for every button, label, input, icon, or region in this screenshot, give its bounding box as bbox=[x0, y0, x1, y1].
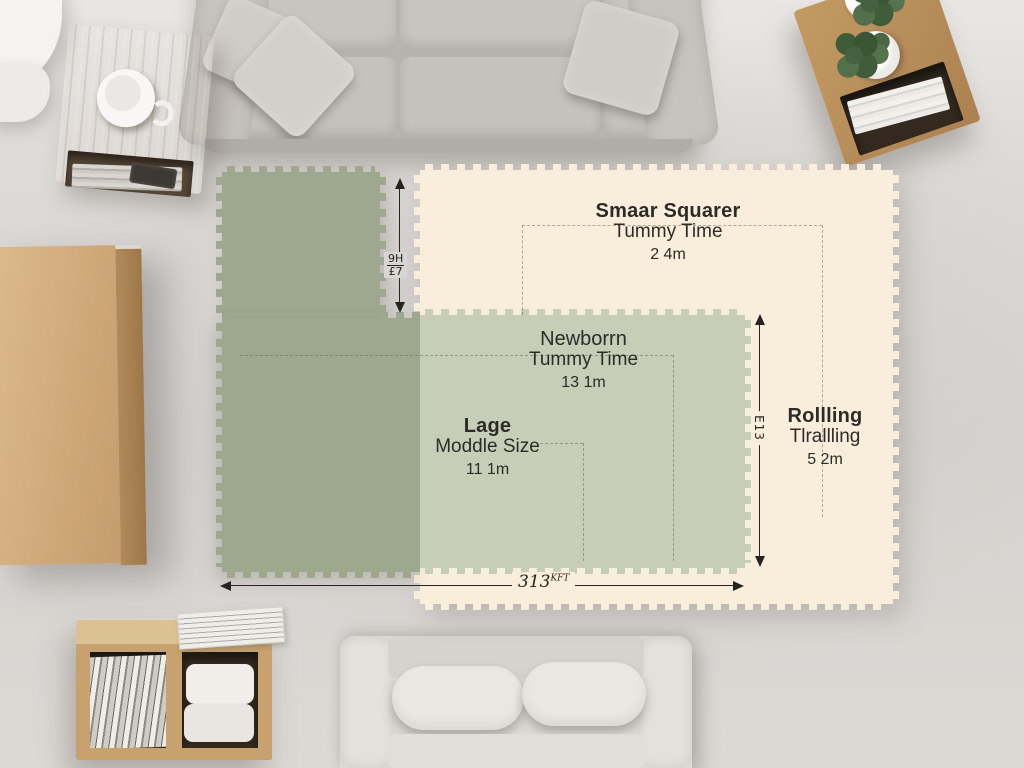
mug-handle bbox=[149, 99, 175, 127]
loveseat-armrest-left bbox=[340, 636, 394, 768]
label-small-square-mat: Smaar Squarer Tummy Time 2 4m bbox=[553, 200, 783, 263]
mat-subname: Tummy Time bbox=[553, 222, 783, 243]
cabinet-top bbox=[0, 245, 121, 565]
sofa-top bbox=[196, 0, 701, 153]
console-cabinet bbox=[0, 245, 147, 566]
loveseat-pillow bbox=[522, 662, 646, 726]
arrowhead-up-icon bbox=[755, 314, 765, 325]
shelf-compartment-right bbox=[182, 652, 258, 748]
guide-large-right bbox=[583, 443, 584, 561]
mat-size: 13 1m bbox=[496, 374, 671, 392]
sofa-back-cushion bbox=[400, 0, 600, 54]
puzzle-edge bbox=[380, 312, 420, 319]
armchair-cushion bbox=[0, 62, 50, 122]
side-table-left bbox=[55, 24, 214, 194]
shelf-compartment-left bbox=[90, 652, 166, 748]
dimension-label-gap: 9H £7 bbox=[384, 252, 407, 278]
loveseat-pillow bbox=[392, 666, 524, 730]
puzzle-edge bbox=[227, 166, 375, 173]
newspaper bbox=[177, 606, 285, 649]
loveseat-seat bbox=[388, 734, 646, 768]
dimension-label-height: E13 bbox=[751, 411, 767, 445]
puzzle-edge bbox=[425, 164, 888, 171]
puzzle-edge bbox=[425, 309, 740, 316]
puzzle-edge bbox=[379, 177, 386, 313]
arrowhead-left-icon bbox=[220, 581, 231, 591]
mat-name: Rollling bbox=[766, 405, 884, 427]
dimension-unit: KFT bbox=[550, 573, 569, 583]
guide-newborn-right bbox=[673, 355, 674, 561]
mat-name: Smaar Squarer bbox=[553, 200, 783, 222]
label-large-mat: Lage Moddle Size 11 1m bbox=[410, 415, 565, 478]
mat-size: 11 1m bbox=[410, 461, 565, 479]
puzzle-edge bbox=[425, 567, 740, 574]
arrowhead-down-icon bbox=[755, 556, 765, 567]
puzzle-edge bbox=[216, 323, 223, 567]
dimension-value: 9H bbox=[387, 253, 404, 266]
side-table-left-shelf bbox=[65, 150, 194, 197]
records-stack bbox=[90, 654, 166, 748]
sofa-front-rail bbox=[204, 139, 693, 153]
mat-size: 5 2m bbox=[766, 451, 884, 469]
label-newborn-mat: Newborrn Tummy Time 13 1m bbox=[496, 328, 671, 391]
cabinet-side bbox=[115, 249, 147, 565]
shelf-frame bbox=[76, 644, 272, 760]
arrowhead-right-icon bbox=[733, 581, 744, 591]
living-room-scene: Smaar Squarer Tummy Time 2 4m Newborrn T… bbox=[0, 0, 1024, 768]
side-table-right bbox=[793, 0, 981, 167]
mat-size: 2 4m bbox=[553, 246, 783, 264]
mat-subname: Tummy Time bbox=[496, 350, 671, 371]
side-table-right-shelf bbox=[840, 61, 964, 155]
folded-towel bbox=[184, 704, 254, 742]
mat-subname: Moddle Size bbox=[410, 437, 565, 458]
play-mat-sage-bottom bbox=[222, 318, 420, 572]
play-mat-sage-top bbox=[222, 172, 380, 318]
guide-small-square-left bbox=[522, 225, 523, 315]
mug bbox=[94, 67, 157, 130]
mat-name: Newborrn bbox=[496, 328, 671, 350]
loveseat-armrest-right bbox=[638, 636, 692, 768]
dimension-label-width: 313KFT bbox=[512, 572, 575, 592]
puzzle-edge bbox=[425, 603, 888, 610]
puzzle-edge bbox=[892, 175, 899, 599]
label-rolling-mat: Rollling Tlrallling 5 2m bbox=[766, 405, 884, 468]
dimension-value: £7 bbox=[387, 266, 404, 278]
books bbox=[847, 76, 950, 134]
puzzle-edge bbox=[216, 177, 223, 313]
dimension-line-width bbox=[228, 585, 736, 586]
mat-subname: Tlrallling bbox=[766, 427, 884, 448]
loveseat-bottom bbox=[340, 636, 692, 768]
dimension-line-gap bbox=[399, 186, 400, 306]
dimension-value: 313 bbox=[518, 572, 550, 592]
arrowhead-down-icon bbox=[395, 302, 405, 313]
folded-towel bbox=[186, 664, 254, 704]
mat-name: Lage bbox=[410, 415, 565, 437]
guide-small-square-right bbox=[822, 225, 823, 517]
puzzle-edge bbox=[227, 571, 415, 578]
arrowhead-up-icon bbox=[395, 178, 405, 189]
